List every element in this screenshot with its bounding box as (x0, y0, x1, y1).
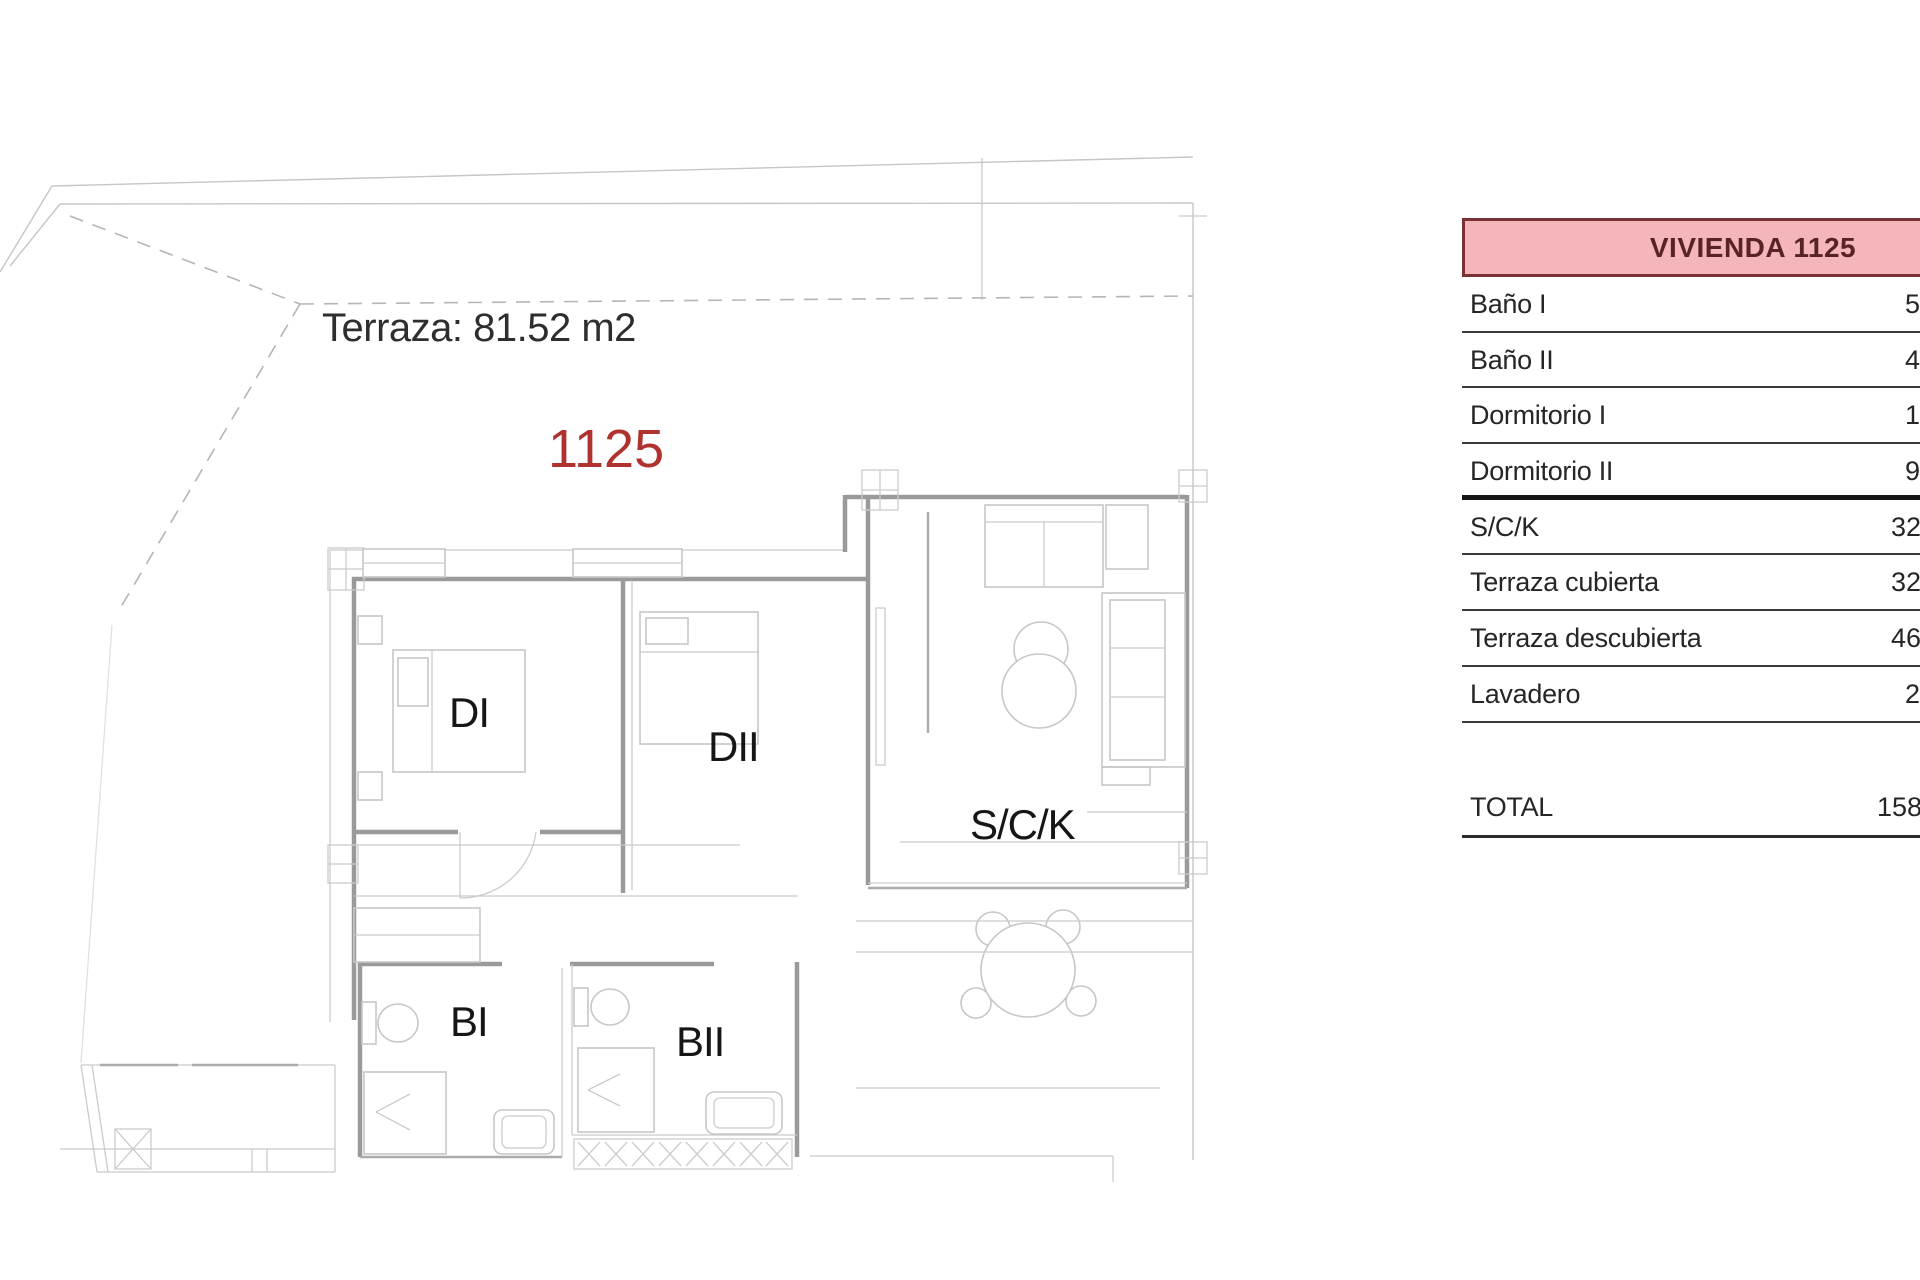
table-row: Lavadero2 (1462, 667, 1920, 723)
windows (363, 549, 682, 577)
row-label: Baño II (1470, 333, 1553, 387)
area-table: VIVIENDA 1125 Baño I5Baño II4Dormitorio … (1462, 218, 1920, 838)
row-label: S/C/K (1470, 500, 1539, 554)
room-label-di: DI (449, 689, 489, 736)
table-row: Terraza descubierta46 (1462, 611, 1920, 667)
row-label: Terraza descubierta (1470, 611, 1701, 665)
table-gap (1462, 723, 1920, 780)
table-rows: Baño I5Baño II4Dormitorio I1Dormitorio I… (1462, 277, 1920, 723)
table-row: Baño II4 (1462, 333, 1920, 389)
row-label: Dormitorio II (1470, 444, 1613, 498)
row-value: 1 (1905, 388, 1920, 442)
row-value: 4 (1905, 333, 1920, 387)
sck-furniture (961, 505, 1185, 1018)
row-label: Lavadero (1470, 667, 1580, 721)
plan-labels: Terraza: 81.52 m2 1125 DI DII S/C/K BI B… (322, 306, 1076, 1065)
room-label-sck: S/C/K (970, 801, 1076, 848)
table-header: VIVIENDA 1125 (1462, 218, 1920, 277)
unit-number-label: 1125 (548, 419, 664, 479)
room-label-bii: BII (676, 1018, 724, 1065)
total-value: 158 (1877, 780, 1920, 834)
terrace-area-label: Terraza: 81.52 m2 (322, 306, 636, 350)
row-value: 2 (1905, 667, 1920, 721)
room-di-furniture (358, 616, 525, 800)
row-label: Baño I (1470, 277, 1546, 331)
row-value: 9 (1905, 444, 1920, 498)
column-markers (328, 470, 1207, 883)
table-row: Dormitorio I1 (1462, 388, 1920, 444)
table-row: Baño I5 (1462, 277, 1920, 333)
site-structure (60, 1065, 335, 1172)
row-value: 32 (1891, 555, 1920, 609)
row-value: 5 (1905, 277, 1920, 331)
room-label-dii: DII (708, 723, 759, 770)
table-row: S/C/K32 (1462, 500, 1920, 556)
laundry-hatch-strip (574, 1139, 792, 1169)
row-label: Dormitorio I (1470, 388, 1606, 442)
row-value: 32 (1891, 500, 1920, 554)
table-row: Terraza cubierta32 (1462, 555, 1920, 611)
table-row: Dormitorio II9 (1462, 444, 1920, 500)
total-label: TOTAL (1470, 780, 1553, 834)
row-label: Terraza cubierta (1470, 555, 1659, 609)
room-label-bi: BI (450, 998, 488, 1045)
floor-plan: Terraza: 81.52 m2 1125 DI DII S/C/K BI B… (0, 0, 1230, 1280)
wardrobe (354, 908, 480, 962)
table-header-title: VIVIENDA 1125 (1650, 232, 1856, 264)
row-value: 46 (1891, 611, 1920, 665)
table-total-row: TOTAL 158 (1462, 780, 1920, 838)
